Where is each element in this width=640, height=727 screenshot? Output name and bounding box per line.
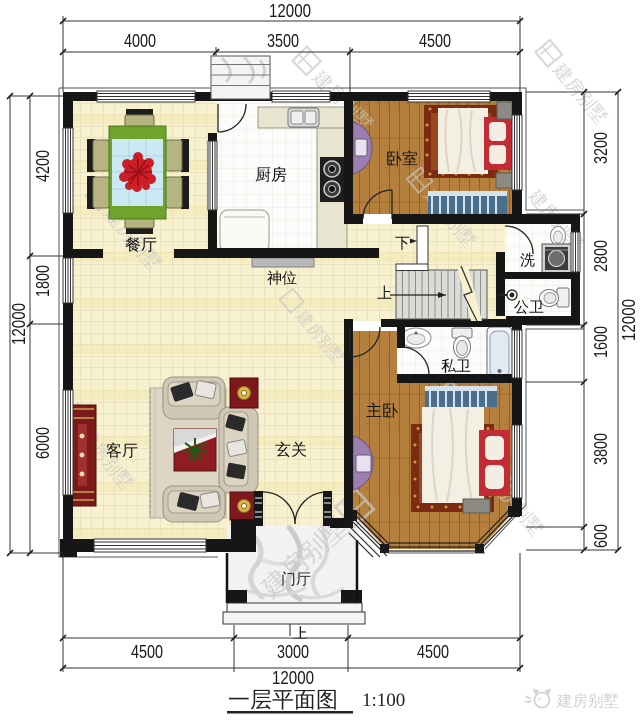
svg-text:600: 600	[591, 524, 611, 548]
svg-text:3800: 3800	[591, 433, 611, 465]
svg-text:2800: 2800	[591, 240, 611, 272]
svg-text:1800: 1800	[33, 265, 53, 297]
svg-text:4200: 4200	[33, 150, 53, 182]
svg-text:3200: 3200	[591, 132, 611, 164]
svg-text:4500: 4500	[131, 642, 163, 662]
svg-text:12000: 12000	[9, 303, 29, 345]
svg-text:12000: 12000	[619, 299, 639, 341]
svg-text:3000: 3000	[277, 642, 309, 662]
svg-text:1600: 1600	[591, 326, 611, 358]
svg-text:12000: 12000	[272, 668, 314, 688]
svg-text:4500: 4500	[417, 642, 449, 662]
svg-text:4500: 4500	[419, 31, 451, 51]
svg-text:3500: 3500	[267, 31, 299, 51]
svg-text:6000: 6000	[33, 427, 53, 459]
svg-text:1:100: 1:100	[362, 690, 405, 711]
svg-text:4000: 4000	[124, 31, 156, 51]
svg-text:12000: 12000	[269, 1, 311, 21]
